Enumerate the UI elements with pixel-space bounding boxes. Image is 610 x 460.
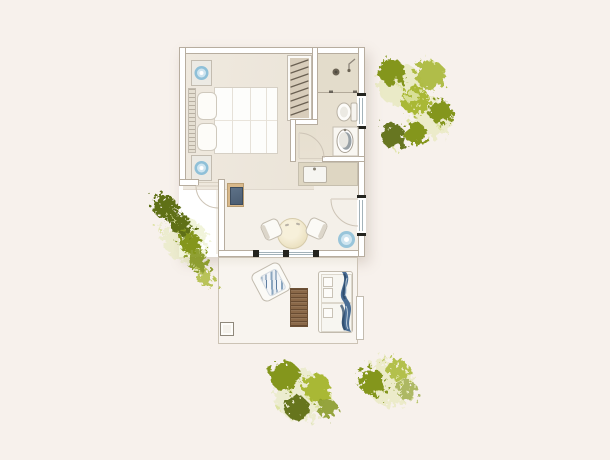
kitchen-sink [303,166,327,183]
shower-floor [316,52,358,93]
bed-pillow [197,92,217,120]
glass-wall-mullion [253,250,259,257]
hall-wall-vertical [290,119,296,162]
bathroom-bottom-wall [322,156,365,162]
tree-cluster-bottom-right [359,358,417,406]
top-wall [179,47,365,54]
living-left-wall [218,179,225,257]
tree-cluster-top-right [378,58,453,152]
left-wall [179,47,186,186]
bedroom-bottom-wall [179,179,199,186]
bedroom-door-threshold [199,182,218,183]
tree-cluster-bottom-left [270,361,337,421]
armchair-cushion [259,268,287,297]
outdoor-wood-table [290,288,308,327]
nightstand-top [191,60,212,86]
door-frame-cap [357,195,366,198]
bed-headboard [188,88,196,153]
bed-duvet [214,87,278,154]
desk-tray [230,187,243,205]
bed-pillow [197,123,217,151]
side-desk [227,183,244,207]
lounger-pillow [323,288,333,298]
window-frame-cap [357,93,366,96]
glass-wall-mullion [313,250,319,257]
bathroom-window [357,96,366,126]
nightstand-bottom [191,155,212,181]
entrance-door-glazing [357,198,366,233]
floor-plan-image [0,0,610,460]
sun-lounger [318,271,353,333]
wardrobe [288,56,311,120]
lounger-pillow [323,277,333,287]
planter-box [220,322,234,336]
lounger-pillow [323,308,333,318]
door-frame-cap [357,233,366,236]
window-frame-cap [357,126,366,129]
bedroom-bathroom-divider-wall [312,47,318,125]
privacy-wall-segment [356,296,364,340]
glass-wall-mullion [283,250,289,257]
bathroom-door-threshold [299,158,322,159]
